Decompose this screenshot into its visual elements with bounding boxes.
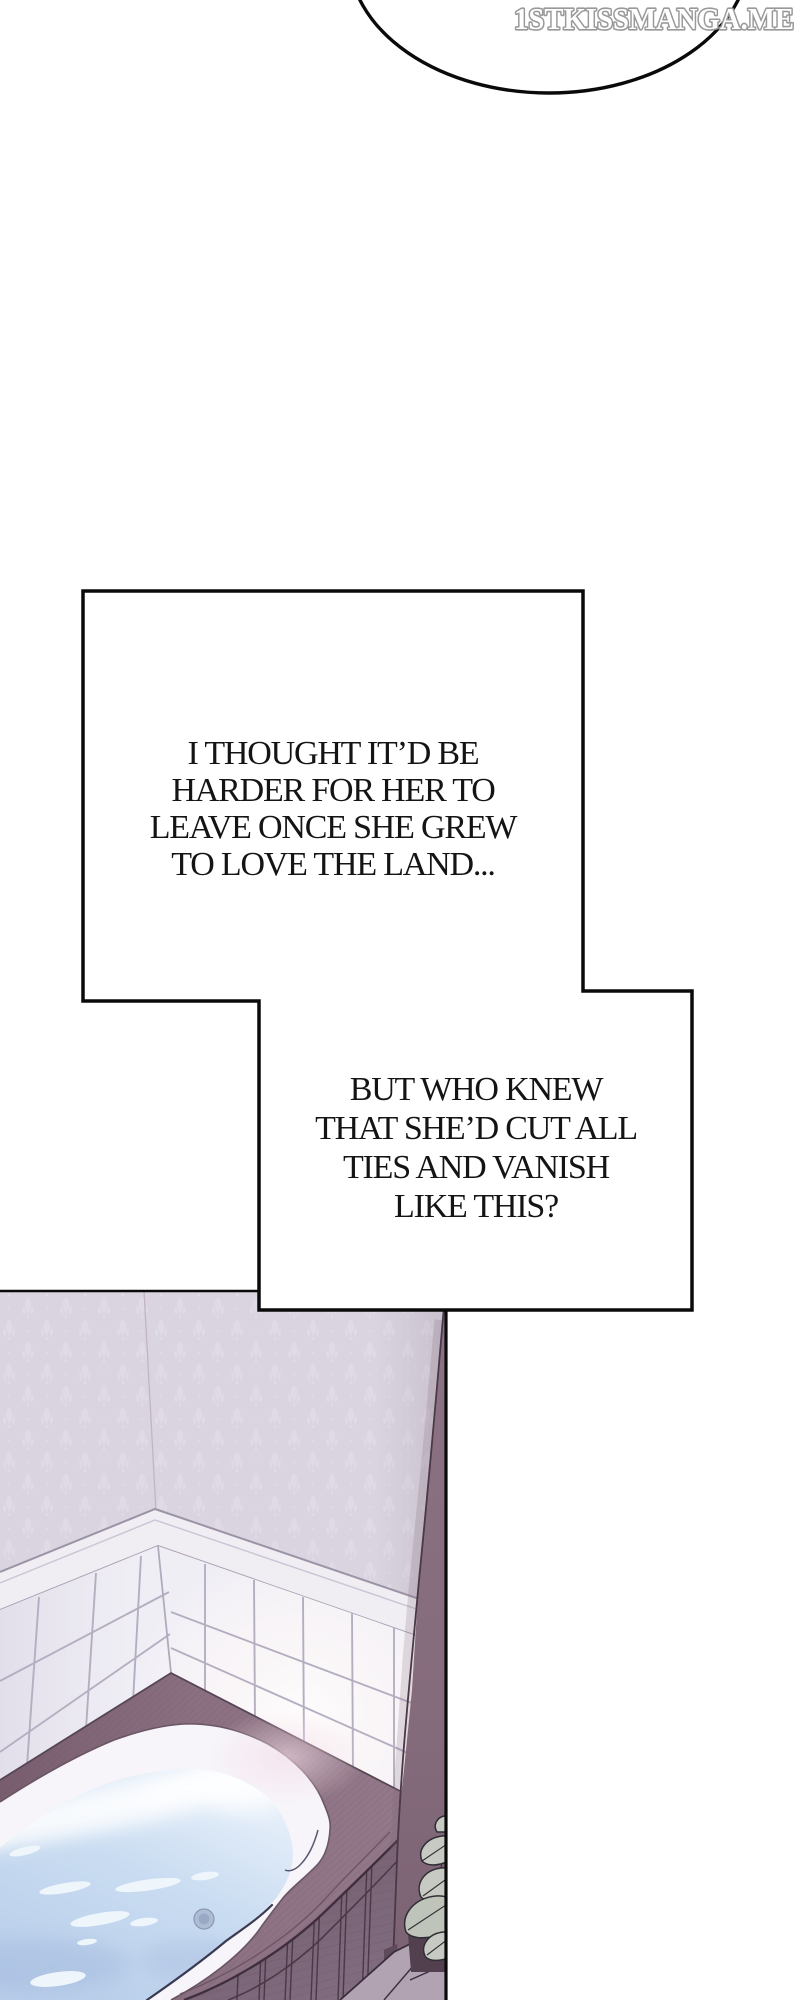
svg-text:LIKE THIS?: LIKE THIS? bbox=[394, 1188, 558, 1225]
svg-text:I THOUGHT IT’D BE: I THOUGHT IT’D BE bbox=[188, 735, 479, 772]
svg-text:LEAVE ONCE SHE GREW: LEAVE ONCE SHE GREW bbox=[150, 809, 519, 846]
svg-text:THAT SHE’D CUT ALL: THAT SHE’D CUT ALL bbox=[315, 1110, 637, 1147]
svg-text:1STKISSMANGA.ME: 1STKISSMANGA.ME bbox=[514, 1, 794, 36]
svg-text:BUT WHO KNEW: BUT WHO KNEW bbox=[350, 1071, 605, 1108]
svg-text:TO LOVE THE LAND...: TO LOVE THE LAND... bbox=[171, 846, 494, 883]
svg-text:TIES AND VANISH: TIES AND VANISH bbox=[343, 1149, 610, 1186]
svg-text:HARDER FOR HER TO: HARDER FOR HER TO bbox=[171, 772, 495, 809]
